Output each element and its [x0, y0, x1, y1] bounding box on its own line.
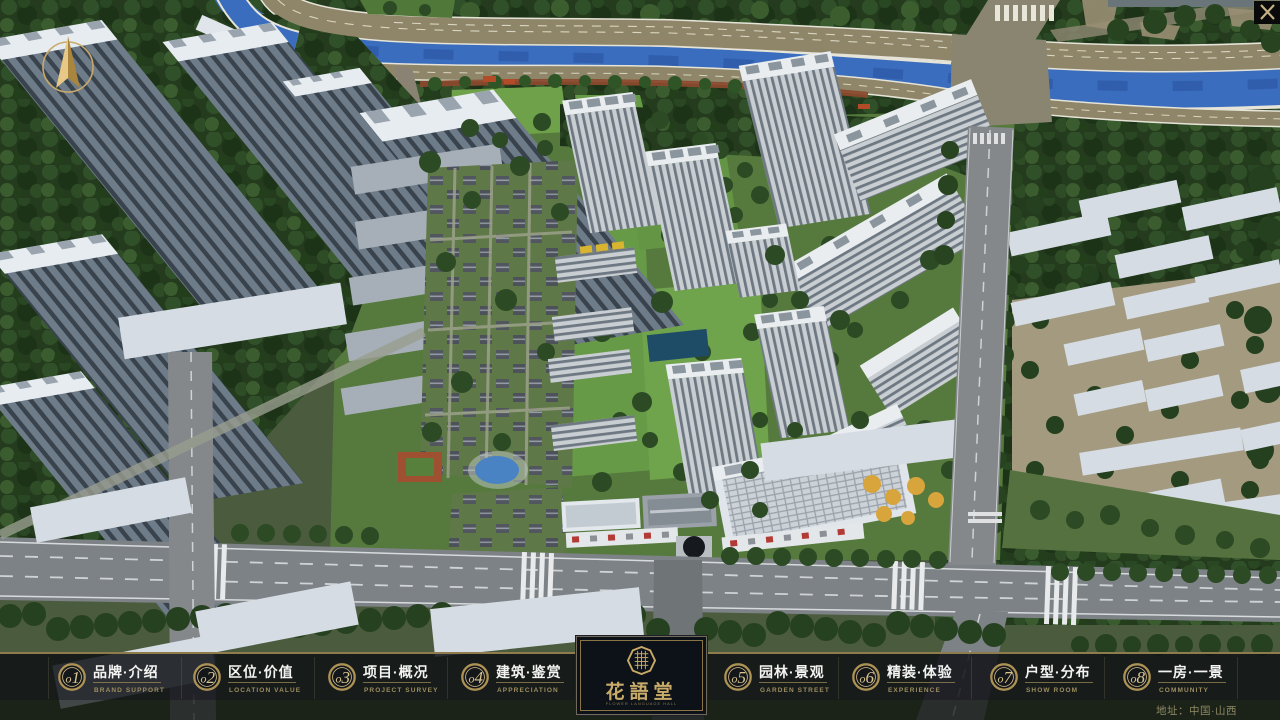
svg-text:o6: o6 — [860, 668, 875, 687]
svg-text:o2: o2 — [201, 668, 216, 687]
svg-text:o4: o4 — [469, 668, 484, 687]
svg-text:o8: o8 — [1131, 668, 1146, 687]
svg-text:o1: o1 — [66, 668, 81, 687]
svg-text:o7: o7 — [998, 668, 1014, 687]
svg-text:o5: o5 — [732, 668, 747, 687]
svg-text:o3: o3 — [336, 668, 351, 687]
